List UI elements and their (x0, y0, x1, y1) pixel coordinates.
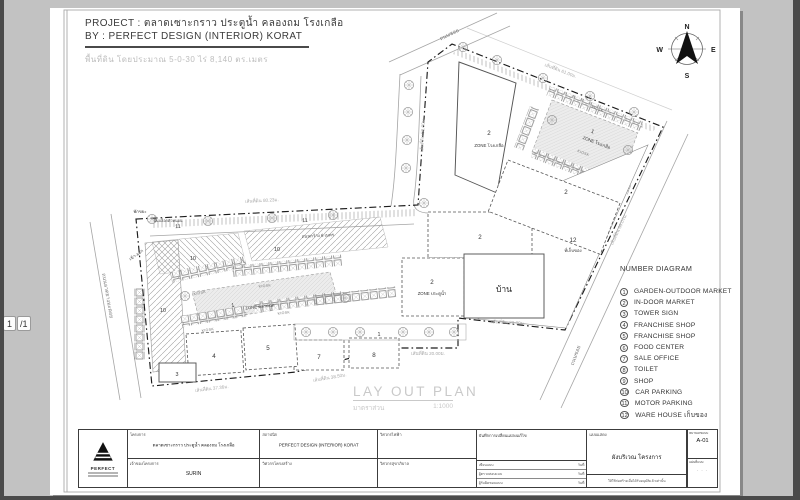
compass-w: W (656, 47, 663, 54)
tree-icon (419, 198, 428, 207)
building-number: 2 (478, 234, 482, 241)
layout-plan-text: LAY OUT PLAN (353, 384, 453, 401)
sheet-label: แผ่นที่แบบ (689, 460, 716, 465)
layout-plan-title: LAY OUT PLAN มาตราส่วน 1:1000 (353, 384, 453, 413)
dim-label: เส้นที่ดิน 38.50ม. (313, 371, 347, 383)
building-number: 2 (487, 130, 491, 137)
legend-number: 10 (620, 388, 629, 396)
building-number: 8 (372, 352, 376, 359)
drawing-note: ให้ใช้ก่อสร้างเมื่อได้รับอนุมัติแล้วเท่า… (587, 474, 686, 487)
tree-icon (585, 91, 594, 100)
legend-number: 3 (620, 310, 628, 318)
tree-icon (623, 145, 632, 154)
compass-e: E (711, 47, 716, 54)
revision-row: ผู้รับผิดชอบแบบ วันที่ (477, 478, 587, 487)
number-diagram-legend: NUMBER DIAGRAM 1GARDEN-OUTDOOR MARKET 2I… (620, 264, 740, 420)
legend-number: 9 (620, 377, 628, 385)
tree-icon (458, 42, 467, 51)
company-logo-cell: PERFECT (79, 430, 128, 487)
building-number: 4 (212, 353, 216, 360)
tree-icon (629, 107, 638, 116)
window-edge (0, 0, 4, 500)
pdf-viewer: เส้นที่ดิน 80.23ม. เส้นที่ดิน 53.00ม. เส… (0, 0, 800, 500)
tree-icon (340, 293, 349, 302)
tree-icon (402, 135, 411, 144)
legend-number: 8 (620, 366, 628, 374)
building-number: 2 (430, 279, 434, 286)
legend-item: 1GARDEN-OUTDOOR MARKET (620, 286, 740, 297)
legend-number: 7 (620, 355, 628, 363)
owner-field-label: เจ้าของโครงการ (130, 460, 159, 467)
tree-icon (328, 210, 337, 219)
perfect-logo-icon (90, 441, 116, 465)
tree-icon (401, 163, 410, 172)
building-5-franchise (243, 324, 298, 370)
tree-icon (538, 73, 547, 82)
by-label: BY : (85, 31, 105, 42)
building-number: 1 (231, 303, 235, 309)
sheet-value: - - - (689, 467, 716, 472)
tree-icon (355, 327, 364, 336)
window-edge (0, 496, 800, 500)
legend-number: 4 (620, 321, 628, 329)
legend-title: NUMBER DIAGRAM (620, 264, 740, 273)
revision-row: เขียนแบบ วันที่ (477, 460, 587, 469)
architect-cell: สถาปนิก PERFECT DESIGN (INTERIOR) KORAT … (260, 430, 378, 487)
legend-item: 10CAR PARKING (620, 387, 740, 398)
kiosk-column (134, 288, 145, 360)
legend-number: 6 (620, 344, 628, 352)
parking-number: 11 (175, 224, 181, 230)
legend-item: 2IN-DOOR MARKET (620, 297, 740, 308)
page-indicator: 1 /1 (3, 316, 31, 331)
house-label: บ้าน (496, 284, 512, 294)
building-number: 3 (176, 372, 179, 378)
legend-item: 11MOTOR PARKING (620, 398, 740, 409)
legend-number: 1 (620, 288, 628, 296)
road-asphalt-left (90, 222, 120, 400)
owner-field-value: SURIN (128, 471, 260, 477)
revision-cell: บันทึกการเปลี่ยนแปลงแก้ไข เขียนแบบ วันที… (477, 430, 588, 487)
architect-field-value: PERFECT DESIGN (INTERIOR) KORAT (260, 443, 377, 448)
logo-text: PERFECT (91, 466, 116, 471)
sheet-number-cell: หมายเลขแบบ A-01 แผ่นที่แบบ - - - (687, 430, 717, 487)
legend-number: 12 (620, 411, 629, 419)
scale-value: 1:1000 (433, 403, 453, 413)
legend-item: 7SALE OFFICE (620, 353, 740, 364)
legend-number: 5 (620, 332, 628, 340)
car-parking-area (244, 217, 388, 261)
tree-icon (267, 213, 276, 222)
engineer-cell: วิศวกรไฟฟ้า วิศวกรสุขาภิบาล (378, 430, 477, 487)
scale-label: มาตราส่วน (353, 403, 384, 413)
revision-row: ผู้ตรวจสอบแบบ วันที่ (477, 469, 587, 478)
revision-header: บันทึกการเปลี่ยนแปลงแก้ไข (477, 430, 587, 460)
site-plan-drawing: เส้นที่ดิน 80.23ม. เส้นที่ดิน 53.00ม. เส… (0, 0, 800, 500)
structural-field-label: วิศวกรโครงสร้าง (262, 460, 291, 467)
project-name: ตลาดเซาะกราว ประตูน้ำ คลองถม โรงเกลือ (144, 18, 344, 29)
page-number-input[interactable]: 1 (3, 316, 16, 331)
building-number: 2 (564, 189, 568, 196)
sanitary-field-label: วิศวกรสุขาภิบาล (380, 460, 409, 467)
project-title-line: PROJECT : ตลาดเซาะกราว ประตูน้ำ คลองถม โ… (85, 16, 344, 31)
parking-number: 10 (160, 308, 166, 314)
tree-icon (404, 80, 413, 89)
legend-item: 9SHOP (620, 376, 740, 387)
project-label: PROJECT : (85, 18, 141, 29)
project-cell: โครงการ ตลาดเซาะกราว ประตูน้ำ คลองถม โรง… (128, 430, 261, 487)
kiosk-label: KIOSK (277, 310, 290, 316)
logo-address-line (88, 472, 118, 474)
by-line: BY : PERFECT DESIGN (INTERIOR) KORAT (85, 31, 344, 42)
tree-icon (180, 291, 189, 300)
title-block: PERFECT โครงการ ตลาดเซาะกราว ประตูน้ำ คล… (78, 429, 718, 488)
tree-icon (449, 327, 458, 336)
page-total-label: /1 (17, 316, 31, 331)
drawing-field-label: แบบแสดง (589, 431, 606, 438)
header-rule (85, 46, 309, 48)
compass-rose: N S W E (656, 24, 716, 80)
sheet-no-label: หมายเลขแบบ (689, 431, 716, 436)
scale-row: มาตราส่วน 1:1000 (353, 403, 453, 413)
tree-icon (547, 115, 556, 124)
building-number: 7 (317, 354, 321, 361)
drawing-field-value: ผังบริเวณ โครงการ (587, 452, 686, 462)
tree-icon (328, 327, 337, 336)
dim-label: เส้นที่ดิน 80.23ม. (245, 196, 279, 204)
project-field-value: ตลาดเซาะกราว ประตูน้ำ คลองถม โรงเกลือ (128, 442, 260, 449)
project-field-label: โครงการ (130, 431, 146, 438)
legend-item: 3TOWER SIGN (620, 308, 740, 319)
drawing-cell: แบบแสดง ผังบริเวณ โครงการ ให้ใช้ก่อสร้าง… (587, 430, 687, 487)
road-internal (391, 74, 400, 206)
tree-icon (424, 327, 433, 336)
legend-item: 5FRANCHISE SHOP (620, 331, 740, 342)
electrical-field-label: วิศวกรไฟฟ้า (380, 431, 402, 438)
window-edge (793, 0, 800, 500)
logo-address-line (88, 475, 118, 477)
parking-number: 11 (302, 218, 308, 224)
road-name: ถนนซอย (439, 27, 461, 42)
compass-n: N (684, 24, 689, 31)
land-area-note: พื้นที่ดิน โดยประมาณ 5-0-30 ไร่ 8,140 ตร… (85, 53, 344, 66)
compass-s: S (685, 73, 690, 80)
legend-item: 8TOILET (620, 364, 740, 375)
building-number: 5 (266, 345, 270, 352)
dim-label: เส้นที่ดิน 20.00ม. (411, 350, 445, 356)
waste-label: พักขยะ (133, 209, 146, 214)
building-2-zone-pratunam (402, 258, 464, 316)
sheet-no-value: A-01 (689, 438, 716, 444)
zone-label: ZONE โรงเกลือ (474, 142, 504, 148)
legend-number: 2 (620, 299, 628, 307)
tree-icon (301, 327, 310, 336)
tree-icon (203, 216, 212, 225)
parking-number: 10 (274, 247, 280, 253)
building-number: 1 (378, 332, 381, 338)
legend-item: 6FOOD CENTER (620, 342, 740, 353)
tree-icon (492, 55, 501, 64)
road-name: ถนนซอย (569, 345, 583, 367)
tree-icon (398, 327, 407, 336)
gate-label: เข้า-ออก (128, 248, 144, 262)
parking-number: 10 (190, 256, 196, 262)
drawing-header: PROJECT : ตลาดเซาะกราว ประตูน้ำ คลองถม โ… (85, 16, 344, 66)
zone-label: ZONE ประตูน้ำ (418, 290, 447, 297)
legend-item: 12WARE HOUSE เก็บของ (620, 409, 740, 420)
dim-label: เส้นที่ดิน 37.36ม. (195, 383, 229, 393)
storage-label: ที่เก็บของ (564, 246, 581, 253)
legend-number: 11 (620, 399, 629, 407)
tree-icon (403, 107, 412, 116)
designer-name: PERFECT DESIGN (INTERIOR) KORAT (109, 31, 303, 42)
architect-field-label: สถาปนิก (262, 431, 277, 438)
building-number: 12 (570, 237, 577, 244)
legend-item: 4FRANCHISE SHOP (620, 320, 740, 331)
